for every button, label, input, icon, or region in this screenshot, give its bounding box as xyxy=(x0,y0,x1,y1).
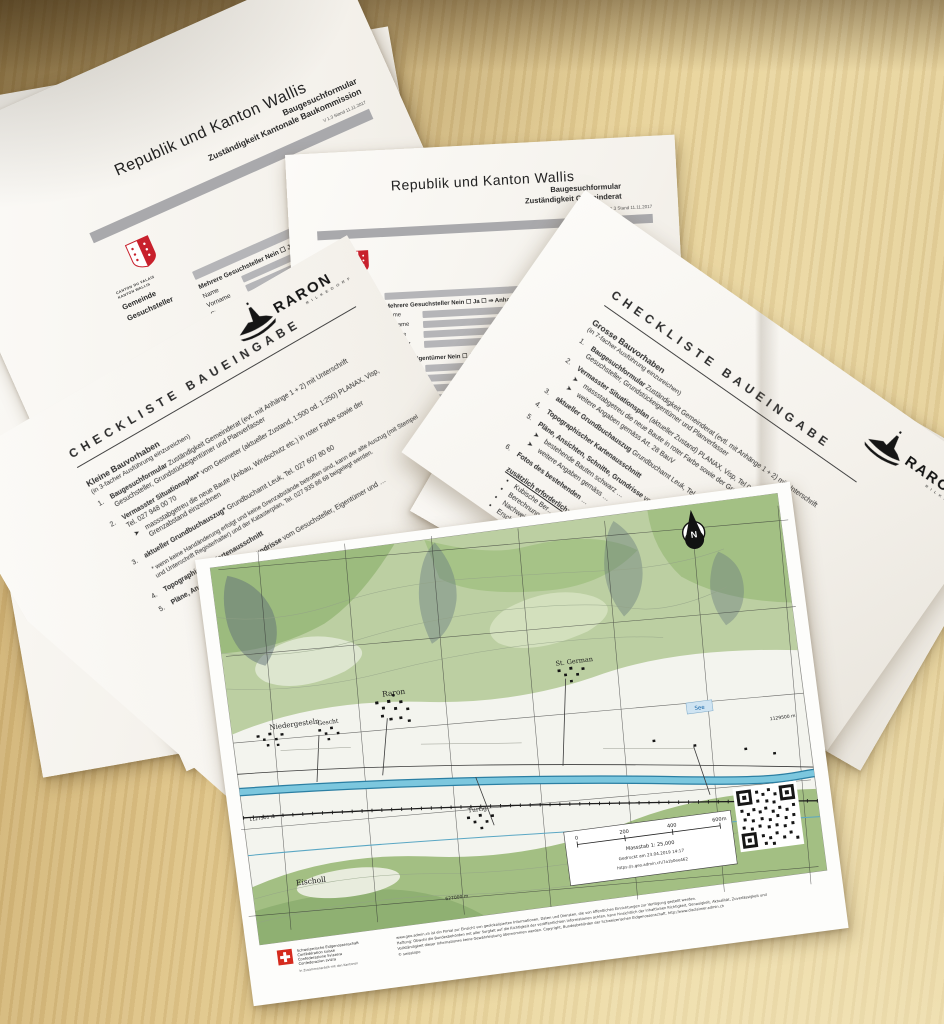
topo-map: See Niedergesteln Gescht Raron St. Germa… xyxy=(195,482,849,1006)
north-letter: N xyxy=(690,529,698,540)
disclaimer-line: © swisstopo xyxy=(398,950,421,957)
swiss-confederation-logo: Schweizerische Eidgenossenschaft Confédé… xyxy=(277,940,363,976)
photo-desk-scene: Republik und Kanton Wallis Baugesuchform… xyxy=(0,0,944,1024)
scale-tick: 0 xyxy=(575,835,579,841)
subitem-text: bestehende Bauten schwarz … xyxy=(541,439,624,501)
scale-tick: 400 xyxy=(667,822,677,829)
qr-code xyxy=(732,780,804,852)
map-printout: See Niedergesteln Gescht Raron St. Germa… xyxy=(195,482,849,1006)
item-text: … xyxy=(578,496,589,507)
scale-tick: 200 xyxy=(619,829,629,836)
